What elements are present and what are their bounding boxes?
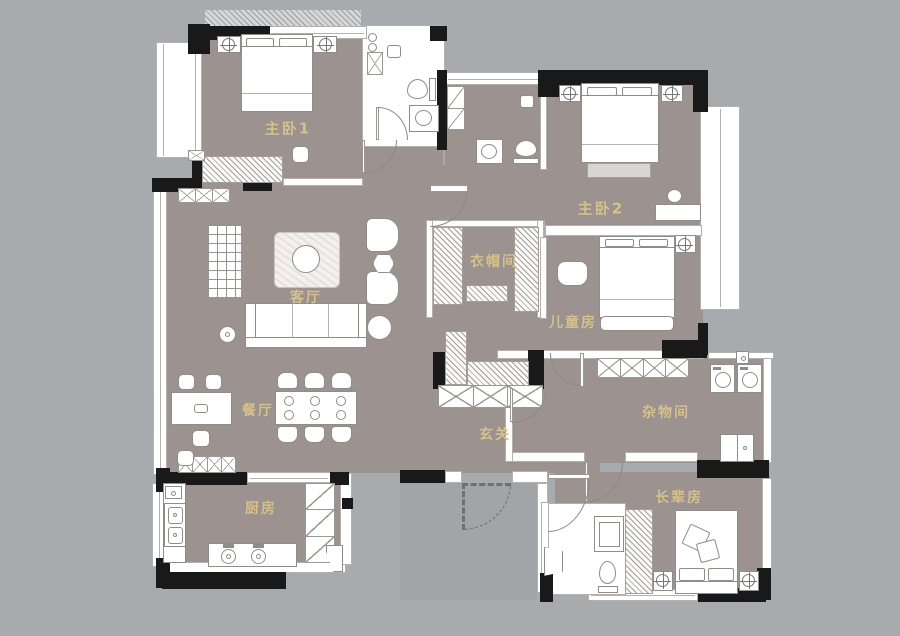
ceiling-fan-icon xyxy=(742,574,755,587)
balcony-connector xyxy=(188,150,205,161)
ceiling-fan-icon xyxy=(656,574,669,587)
armchair xyxy=(366,218,399,252)
foyer-bench-top xyxy=(467,361,529,386)
master2-bed xyxy=(581,83,659,163)
bath1-door-leaf xyxy=(376,107,379,140)
kitchen-sink xyxy=(164,503,186,547)
armchair xyxy=(366,271,399,305)
elder-north-wall-a xyxy=(505,452,585,462)
room-label-foyer: 玄关 xyxy=(479,424,511,444)
room-label-dining: 餐厅 xyxy=(242,400,274,420)
room-label-master1: 主卧1 xyxy=(265,118,311,139)
toilet xyxy=(597,561,620,593)
stove-counter xyxy=(208,543,297,567)
dining-chair xyxy=(277,372,298,389)
bathroom-sink xyxy=(409,105,439,132)
wall xyxy=(697,460,769,478)
kids-bed-bench xyxy=(600,316,674,331)
elder-bath-door-leaf xyxy=(548,474,590,479)
ceiling-fan-icon xyxy=(319,38,332,51)
kitchen-island xyxy=(171,392,232,425)
washing-machine xyxy=(710,364,735,393)
ceiling-fan-icon xyxy=(678,238,691,251)
shared-bath-cabinet xyxy=(447,86,465,130)
bar-stool xyxy=(205,374,222,390)
room-label-kitchen: 厨房 xyxy=(245,498,277,518)
living-window-strip xyxy=(153,183,167,475)
dining-chair xyxy=(331,372,352,389)
room-label-cloakroom: 衣帽间 xyxy=(470,251,518,271)
elder-bed xyxy=(675,510,738,594)
master-suite-door-leaf xyxy=(362,140,365,173)
hook-icon xyxy=(368,43,377,52)
wall xyxy=(342,498,353,509)
sofa xyxy=(245,303,367,348)
cloakroom-shelf-left xyxy=(433,227,463,305)
dresser xyxy=(655,204,701,221)
elder-wardrobe xyxy=(625,509,653,594)
entry-wall-right xyxy=(512,471,548,483)
bathroom-sink xyxy=(476,139,503,164)
cloakroom-wall-w xyxy=(426,220,433,318)
room-label-master2: 主卧2 xyxy=(578,198,624,219)
bath1-cabinet xyxy=(367,52,383,75)
wall xyxy=(430,26,447,41)
hall-wall-master2 xyxy=(540,95,547,170)
corridor-door-leaf xyxy=(510,388,513,422)
floor-plan: 主卧1 主卧2 衣帽间 儿童房 客厅 餐厅 玄关 杂物间 长辈房 厨房 xyxy=(0,0,900,636)
room-label-elder: 长辈房 xyxy=(655,487,703,507)
master1-wardrobe xyxy=(202,156,283,183)
bed-bench xyxy=(587,163,651,178)
toilet xyxy=(406,76,436,104)
elder-north-wall-b xyxy=(625,452,698,462)
foyer-bench-side xyxy=(445,331,467,385)
counter-item xyxy=(165,486,182,499)
ceiling-fan-icon xyxy=(222,38,235,51)
master1-south-wall xyxy=(283,178,363,186)
east-corridor-door-leaf xyxy=(580,353,584,387)
washing-machine xyxy=(737,364,762,393)
balcony-window-line xyxy=(163,44,196,156)
desk-chair xyxy=(557,261,588,286)
bed-end-stool xyxy=(292,146,309,163)
elder-right-window xyxy=(762,478,772,572)
bar-stool xyxy=(177,450,194,466)
shared-bath-top-wall xyxy=(445,72,541,85)
wall xyxy=(540,573,553,602)
kids-bed xyxy=(599,236,675,318)
wall xyxy=(662,340,707,358)
ceiling-fan-icon xyxy=(563,87,576,100)
wall xyxy=(162,572,286,589)
wall xyxy=(400,470,445,483)
coffee-table xyxy=(292,245,320,273)
bathroom-sink xyxy=(594,516,624,552)
shower xyxy=(544,547,563,576)
tv-cabinet xyxy=(178,188,230,203)
ceiling-fan-icon xyxy=(665,87,678,100)
laundry-sink xyxy=(736,351,749,364)
room-label-storage: 杂物间 xyxy=(642,402,690,422)
kitchen-top-window xyxy=(247,472,331,483)
suite-hall-door-leaf xyxy=(430,185,468,192)
eave-hatch xyxy=(205,10,361,26)
floor-lamp xyxy=(219,326,236,343)
floor-drain xyxy=(520,95,534,108)
wall xyxy=(528,350,544,389)
hall-wall-kids xyxy=(540,237,547,319)
storage-right-wall xyxy=(763,357,772,463)
wall xyxy=(433,352,445,389)
dining-chair xyxy=(304,372,325,389)
bar-stool xyxy=(178,374,195,390)
master1-bed xyxy=(241,34,313,112)
dining-chair xyxy=(304,426,325,443)
storage-low-cabinet xyxy=(720,434,754,462)
bookshelf xyxy=(207,224,242,299)
floor-drain xyxy=(387,45,401,58)
room-label-living: 客厅 xyxy=(290,287,322,307)
dining-chair xyxy=(277,426,298,443)
wall xyxy=(693,82,708,112)
hook-icon xyxy=(368,33,377,42)
cloakroom-shelf-bottom xyxy=(466,285,508,302)
east-bay-window xyxy=(700,106,740,310)
bar-stool xyxy=(192,430,210,447)
dining-chair xyxy=(331,426,352,443)
dresser-stool xyxy=(667,189,682,203)
toilet xyxy=(511,140,541,164)
round-side-table xyxy=(367,315,392,340)
dining-table xyxy=(275,391,357,425)
room-label-kids: 儿童房 xyxy=(549,312,597,332)
storage-cabinet xyxy=(597,358,689,378)
entry-wall-left xyxy=(445,471,462,483)
